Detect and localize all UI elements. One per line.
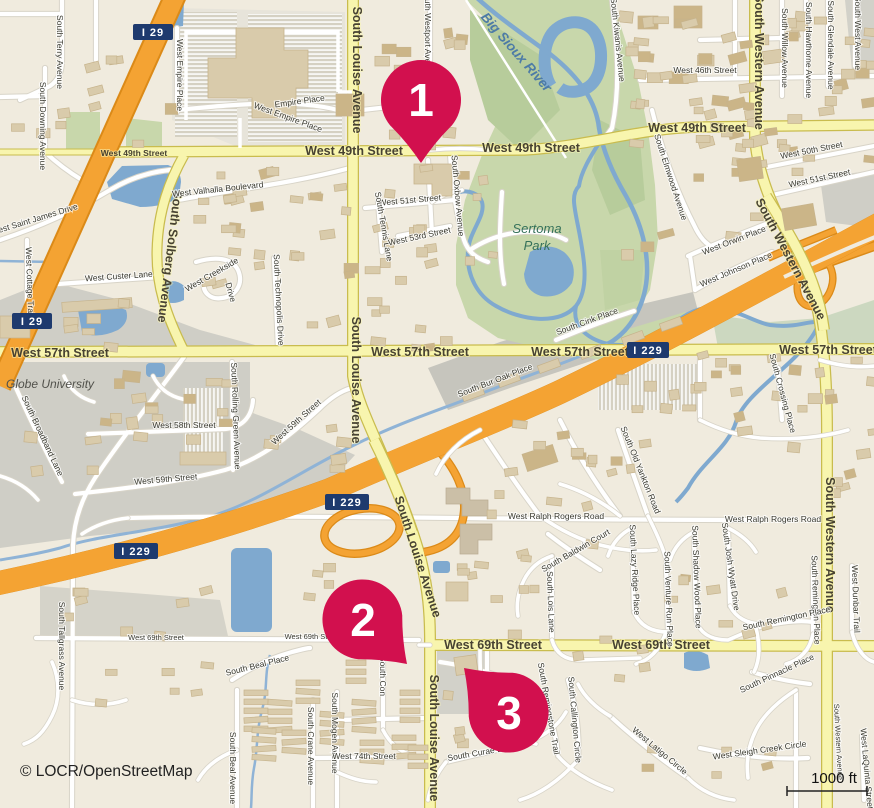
svg-text:West 57th Street: West 57th Street [779, 343, 874, 357]
svg-text:West 49th Street: West 49th Street [101, 148, 168, 158]
svg-text:I 29: I 29 [142, 27, 164, 39]
svg-text:© LOCR/OpenStreetMap: © LOCR/OpenStreetMap [20, 763, 193, 780]
svg-text:I 29: I 29 [21, 316, 43, 328]
svg-text:West 57th Street: West 57th Street [11, 346, 110, 360]
svg-text:South Con: South Con [378, 656, 388, 696]
svg-text:West 58th Street: West 58th Street [152, 420, 216, 430]
svg-text:West 49th Street: West 49th Street [482, 141, 581, 155]
svg-text:West 69th Street: West 69th Street [444, 638, 543, 652]
svg-text:South Tallgrass Avenue: South Tallgrass Avenue [57, 602, 67, 691]
svg-text:South Western Avenue: South Western Avenue [823, 477, 837, 613]
svg-text:South Terry Avenue: South Terry Avenue [55, 15, 65, 89]
svg-text:South Crane Avenue: South Crane Avenue [306, 707, 316, 786]
svg-text:West 57th Street: West 57th Street [531, 345, 630, 359]
svg-text:West Empire Place: West Empire Place [175, 39, 185, 111]
svg-text:West 49th Street: West 49th Street [305, 144, 404, 158]
svg-text:South Western Avenue: South Western Avenue [752, 0, 766, 130]
svg-text:West 69th St: West 69th St [285, 632, 329, 641]
svg-text:West 49th Street: West 49th Street [648, 121, 747, 135]
svg-text:Park: Park [524, 238, 552, 253]
svg-text:South West Avenue: South West Avenue [853, 0, 863, 70]
svg-text:2: 2 [350, 594, 376, 646]
svg-text:West 69th Street: West 69th Street [128, 633, 185, 642]
svg-text:1000 ft: 1000 ft [811, 770, 858, 787]
svg-text:3: 3 [496, 687, 522, 739]
svg-text:South Glendale Avenue: South Glendale Avenue [826, 0, 836, 89]
svg-text:South Downing Avenue: South Downing Avenue [38, 82, 48, 170]
svg-text:South Louise Avenue: South Louise Avenue [427, 675, 441, 802]
svg-text:Sertoma: Sertoma [512, 221, 561, 236]
svg-text:South Willow Avenue: South Willow Avenue [780, 8, 790, 88]
svg-text:I 229: I 229 [633, 345, 662, 357]
svg-text:West 74th Street: West 74th Street [332, 751, 396, 761]
svg-text:West 69th Street: West 69th Street [612, 638, 711, 652]
svg-text:Globe University: Globe University [6, 377, 95, 391]
svg-text:South Hawthorne Avenue: South Hawthorne Avenue [804, 2, 814, 99]
svg-text:West 57th Street: West 57th Street [371, 345, 470, 359]
svg-text:West Ralph Rogers Road: West Ralph Rogers Road [508, 511, 604, 521]
svg-text:South Beal Avenue: South Beal Avenue [228, 732, 238, 804]
svg-text:West Ralph Rogers Road: West Ralph Rogers Road [725, 514, 821, 524]
svg-text:West 46th Street: West 46th Street [673, 65, 737, 75]
svg-text:1: 1 [408, 74, 434, 126]
svg-text:South Louise Avenue: South Louise Avenue [349, 317, 363, 444]
svg-text:South Louise Avenue: South Louise Avenue [350, 7, 364, 134]
svg-text:South Mogen Avenue: South Mogen Avenue [330, 692, 340, 773]
svg-text:I 229: I 229 [332, 497, 361, 509]
svg-text:I 229: I 229 [121, 546, 150, 558]
